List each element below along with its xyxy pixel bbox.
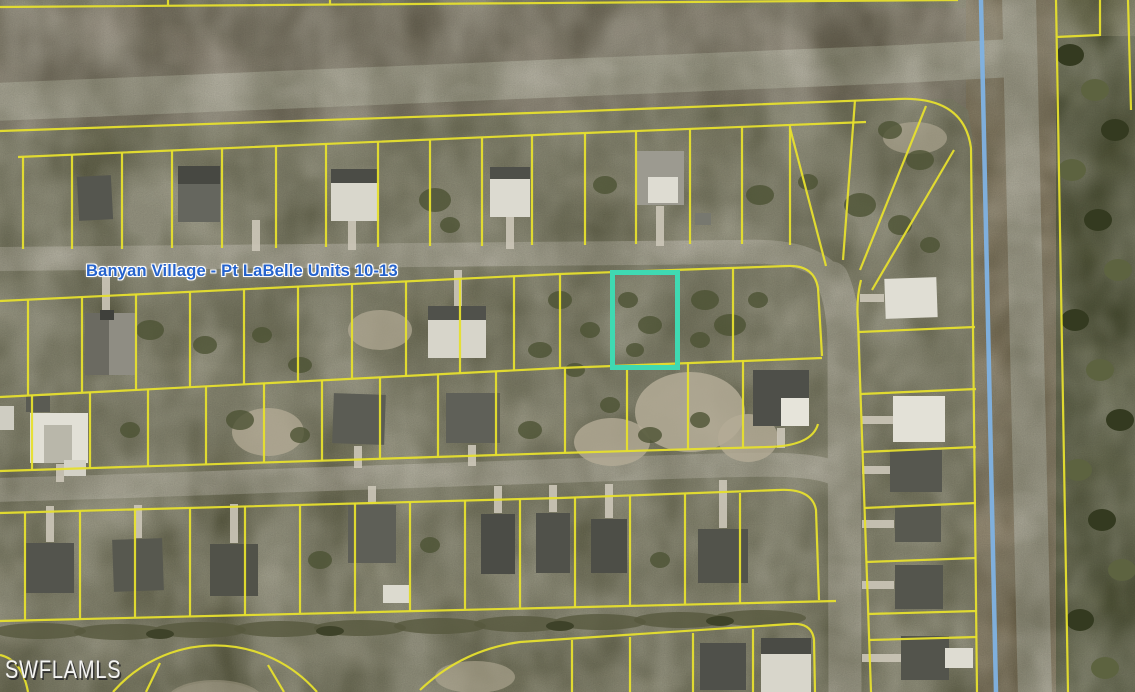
highlighted-parcel-outline: [610, 270, 680, 370]
mls-watermark: SWFLAMLS: [5, 656, 121, 685]
aerial-imagery: [0, 0, 1135, 692]
texture-overlay: [0, 0, 1135, 692]
aerial-map-viewport: Banyan Village - Pt LaBelle Units 10-13 …: [0, 0, 1135, 692]
subdivision-street-label: Banyan Village - Pt LaBelle Units 10-13: [86, 262, 398, 281]
